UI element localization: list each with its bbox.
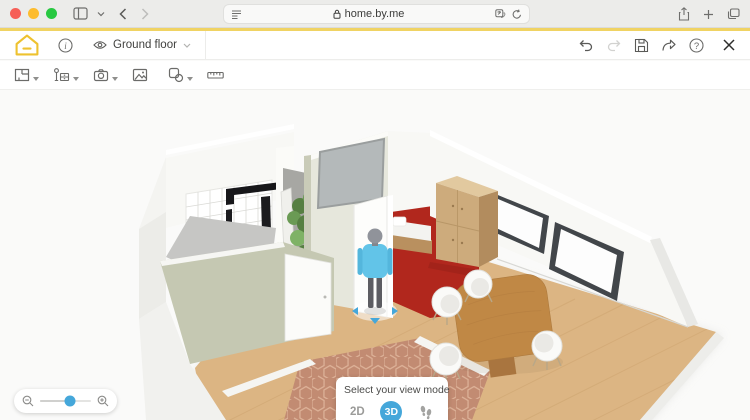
undo-button[interactable]	[578, 38, 594, 53]
share-page-icon[interactable]	[678, 7, 690, 21]
eye-icon	[93, 40, 107, 50]
address-bar[interactable]: home.by.me	[223, 4, 530, 24]
minimize-window-button[interactable]	[28, 8, 39, 19]
url-host: home.by.me	[242, 8, 495, 20]
dropdown-caret	[33, 77, 39, 81]
ruler-icon	[207, 67, 224, 83]
view-mode-first-person-button[interactable]	[418, 404, 434, 420]
browser-titlebar: home.by.me	[0, 0, 750, 28]
reload-icon[interactable]	[512, 9, 522, 20]
floorplan-3d-scene[interactable]	[0, 90, 750, 420]
tools-toolbar	[0, 61, 750, 90]
window-controls	[10, 8, 57, 19]
furniture-icon	[53, 67, 70, 83]
screenshot-root: home.by.me i	[0, 0, 750, 420]
sidebar-toggle-icon[interactable]	[73, 7, 89, 20]
close-window-button[interactable]	[10, 8, 21, 19]
tab-overview-icon[interactable]	[727, 8, 740, 20]
ruler-tool-button[interactable]	[201, 63, 232, 87]
wall-mirror[interactable]	[318, 139, 384, 208]
redo-button[interactable]	[606, 38, 622, 53]
homebyme-logo[interactable]	[14, 33, 40, 57]
furniture-tool-button[interactable]	[47, 63, 87, 87]
bedroom-back-wall	[388, 131, 433, 218]
floor-plan-icon	[14, 67, 30, 83]
forward-button[interactable]	[141, 8, 149, 20]
closed-door[interactable]	[285, 254, 331, 341]
dropdown-caret	[73, 77, 79, 81]
translate-icon[interactable]	[495, 9, 506, 20]
chevron-down-icon	[183, 43, 191, 48]
dropdown-caret	[187, 77, 193, 81]
share-project-button[interactable]	[661, 38, 677, 52]
help-icon[interactable]: ?	[689, 38, 704, 53]
view-mode-title: Select your view mode	[344, 384, 440, 396]
save-button[interactable]	[634, 38, 649, 53]
zoom-out-icon[interactable]	[22, 395, 34, 407]
scene-canvas[interactable]	[0, 90, 750, 420]
close-icon[interactable]	[722, 38, 736, 52]
floor-plan-tool-button[interactable]	[8, 63, 47, 87]
zoom-slider-thumb[interactable]	[64, 396, 75, 407]
view-mode-panel: Select your view mode 2D 3D	[336, 377, 448, 420]
view-mode-3d-button[interactable]: 3D	[380, 401, 402, 420]
svg-text:i: i	[64, 40, 67, 50]
new-tab-icon[interactable]	[703, 9, 714, 20]
camera-icon	[93, 67, 109, 83]
footsteps-icon	[418, 404, 434, 420]
dropdown-caret	[112, 77, 118, 81]
shapes-tool-button[interactable]	[162, 63, 201, 87]
shapes-icon	[168, 67, 184, 83]
image-icon	[132, 67, 148, 83]
image-tool-button[interactable]	[126, 63, 156, 87]
zoom-window-button[interactable]	[46, 8, 57, 19]
floor-label: Ground floor	[113, 39, 177, 51]
reader-icon[interactable]	[231, 9, 242, 20]
back-button[interactable]	[119, 8, 127, 20]
lock-icon	[333, 9, 341, 19]
divider	[205, 31, 206, 59]
app-header: i Ground floor ?	[0, 31, 750, 60]
sidebar-chevron-icon[interactable]	[97, 11, 105, 17]
view-mode-2d-button[interactable]: 2D	[350, 406, 365, 418]
zoom-in-icon[interactable]	[97, 395, 109, 407]
camera-tool-button[interactable]	[87, 63, 126, 87]
zoom-slider[interactable]	[40, 400, 91, 402]
zoom-control	[14, 389, 117, 413]
info-icon[interactable]: i	[58, 38, 73, 53]
svg-text:?: ?	[694, 40, 699, 51]
floor-selector[interactable]: Ground floor	[93, 39, 191, 51]
